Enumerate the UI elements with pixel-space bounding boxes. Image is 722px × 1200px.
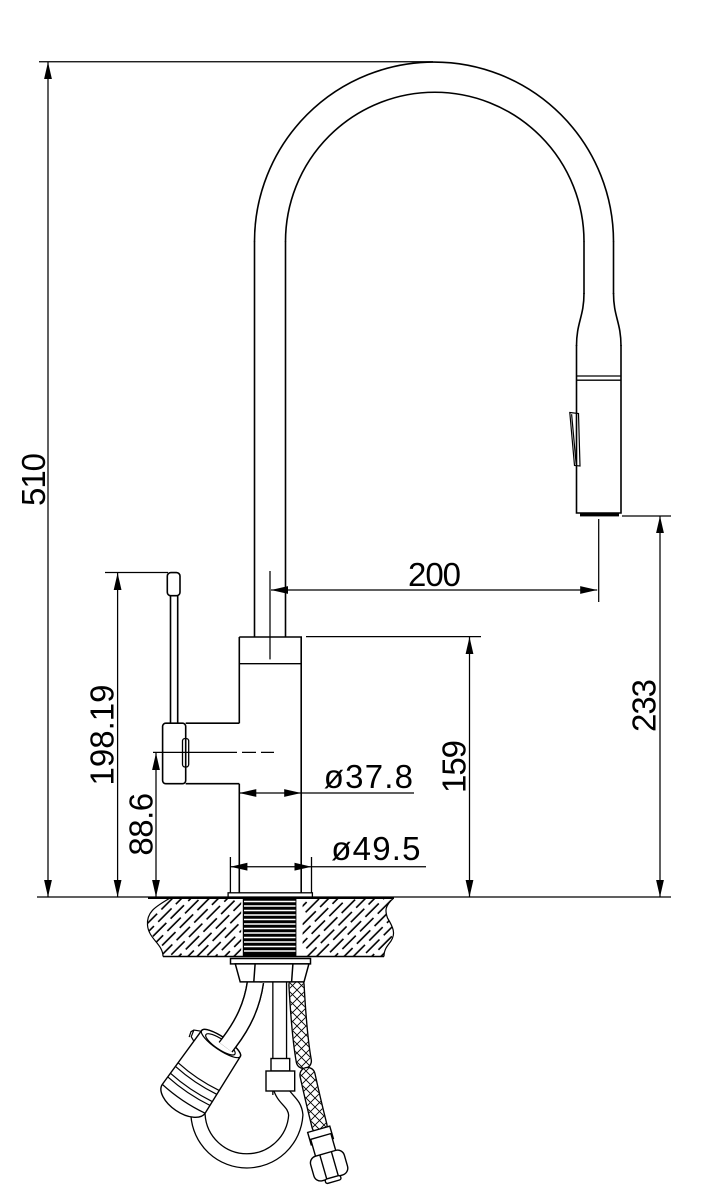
- svg-text:198.19: 198.19: [84, 685, 121, 786]
- svg-text:200: 200: [408, 556, 461, 593]
- svg-text:ø49.5: ø49.5: [331, 830, 421, 867]
- svg-text:ø37.8: ø37.8: [324, 758, 414, 795]
- svg-text:159: 159: [436, 741, 473, 793]
- svg-text:510: 510: [15, 453, 52, 506]
- svg-text:88.6: 88.6: [123, 793, 160, 855]
- svg-text:233: 233: [626, 680, 663, 732]
